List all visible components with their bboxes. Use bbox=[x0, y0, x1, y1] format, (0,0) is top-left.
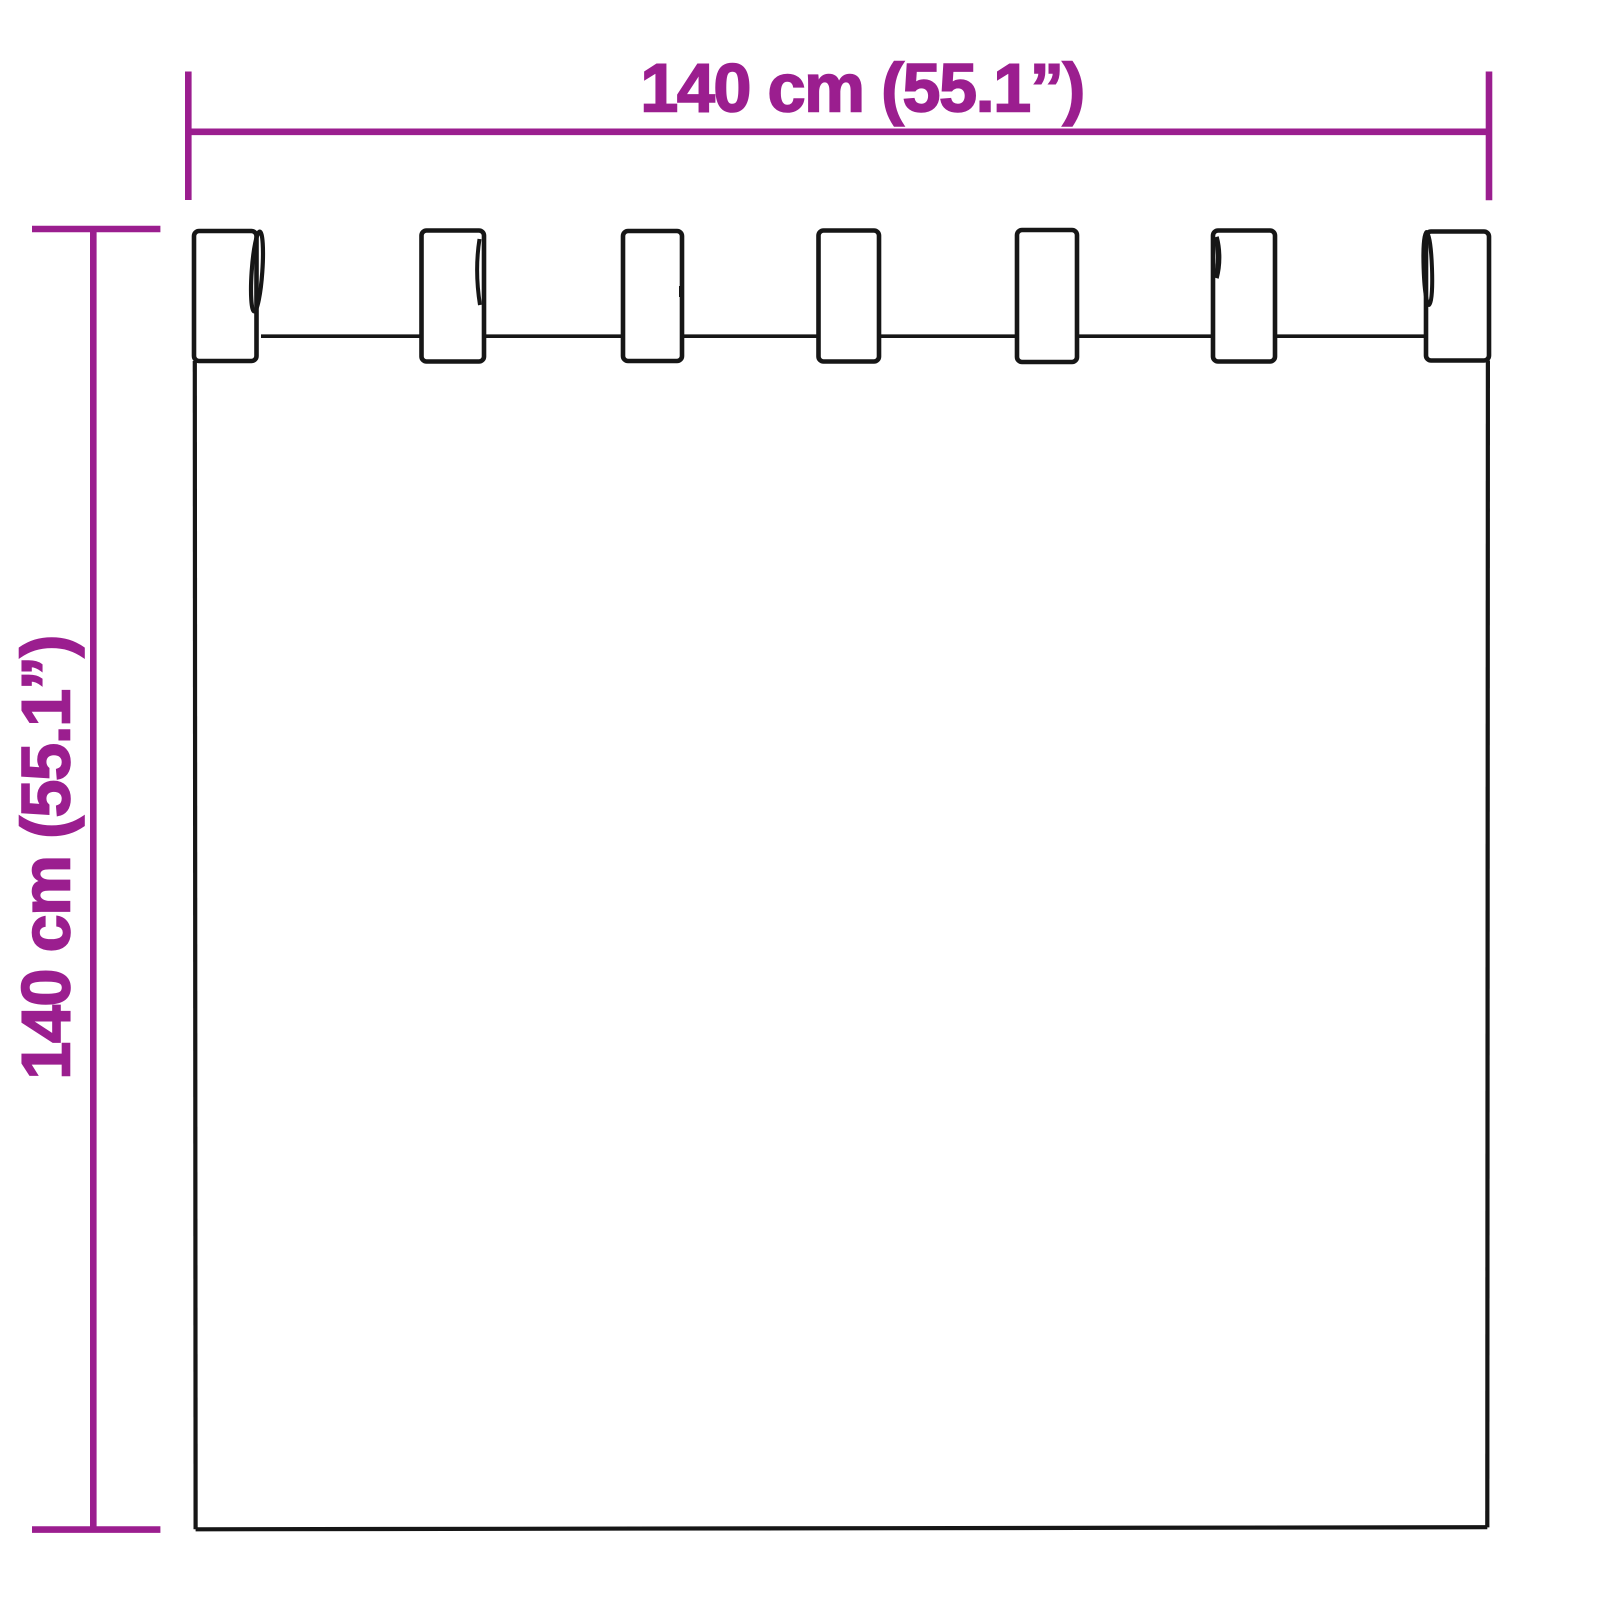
svg-text:140 cm (55.1”): 140 cm (55.1”) bbox=[640, 49, 1084, 126]
svg-text:140 cm (55.1”): 140 cm (55.1”) bbox=[8, 636, 85, 1080]
